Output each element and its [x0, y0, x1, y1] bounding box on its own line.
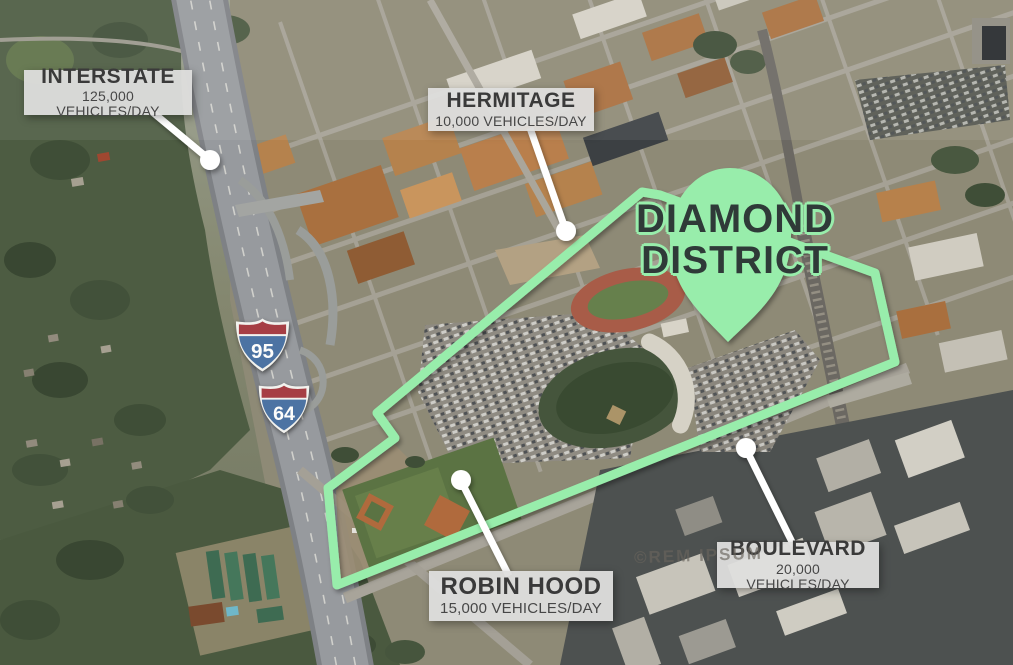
district-title-line2: DISTRICT — [560, 241, 910, 282]
interstate-95-shield: 95 — [233, 314, 292, 376]
callout-interstate-title: INTERSTATE — [41, 66, 175, 89]
robin-hood-map-dot — [451, 470, 471, 490]
callout-hermitage: HERMITAGE 10,000 VEHICLES/DAY — [428, 88, 594, 131]
callout-interstate-subtitle: 125,000 VEHICLES/DAY — [30, 89, 186, 119]
callout-robin-hood: ROBIN HOOD 15,000 VEHICLES/DAY — [429, 571, 613, 621]
interstate-64-shield: 64 — [254, 380, 314, 436]
interstate-95-number: 95 — [251, 340, 274, 363]
callout-robin-hood-title: ROBIN HOOD — [441, 574, 602, 600]
callout-boulevard-subtitle: 20,000 VEHICLES/DAY — [723, 562, 873, 592]
callout-interstate: INTERSTATE 125,000 VEHICLES/DAY — [24, 70, 192, 115]
aerial-map: 95 64 DIAMOND DISTRICT INTERSTATE 125,00… — [0, 0, 1013, 665]
district-title-line1: DIAMOND — [560, 199, 910, 241]
district-title: DIAMOND DISTRICT — [560, 199, 910, 281]
interstate-64-number: 64 — [273, 403, 295, 425]
callout-hermitage-subtitle: 10,000 VEHICLES/DAY — [435, 114, 586, 129]
boulevard-map-dot — [736, 438, 756, 458]
callout-hermitage-title: HERMITAGE — [447, 90, 576, 113]
interstate-map-dot — [200, 150, 220, 170]
callout-robin-hood-subtitle: 15,000 VEHICLES/DAY — [440, 601, 602, 617]
